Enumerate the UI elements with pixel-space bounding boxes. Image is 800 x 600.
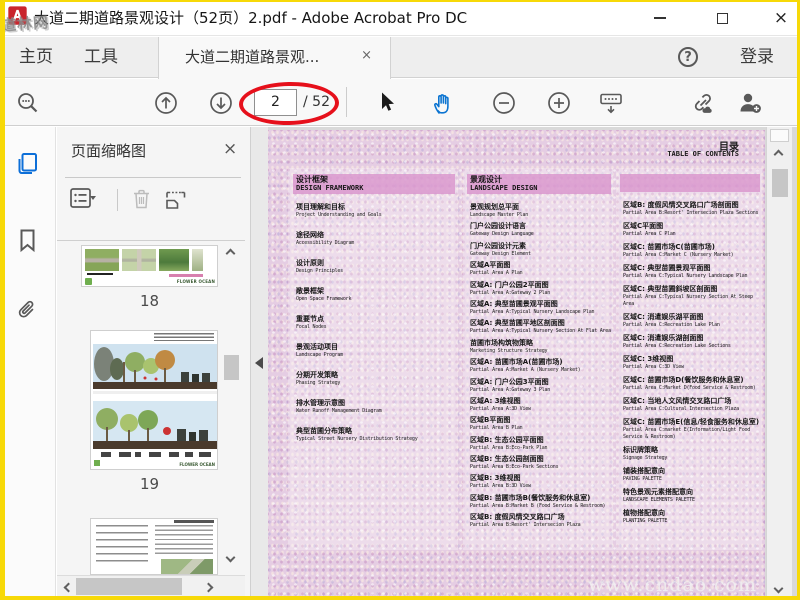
entry-cn: 设计原则 bbox=[296, 259, 455, 268]
scroll-down-icon[interactable] bbox=[226, 553, 236, 563]
entry-en: Partial Area B:Eco-Park Sections bbox=[470, 464, 611, 471]
title-bar: 大道二期道路景观设计（52页）2.pdf - Adobe Acrobat Pro… bbox=[0, 0, 800, 36]
toc-entry: 典型苗圃分布策略 Typical Street Nursery Distribu… bbox=[293, 427, 455, 443]
scrollbar-thumb[interactable] bbox=[224, 355, 239, 380]
thumb19-header-text bbox=[154, 333, 214, 342]
zoom-in-button[interactable] bbox=[546, 90, 572, 116]
toc-entry: 门户公园设计语言 Gateway Design Language bbox=[467, 222, 611, 238]
toc-entry: 植物搭配意向 PLANTING PALETTE bbox=[620, 509, 760, 525]
toc-entry: 区域B: 度假风情交叉路口广场剖面图 Partial Area B:Resort… bbox=[620, 201, 760, 217]
toc-entry: 排水管理示意图 Water Runoff Management Diagram bbox=[293, 399, 455, 415]
toc-entry: 重要节点 Focal Nodes bbox=[293, 315, 455, 331]
entry-en: Partial Area A:Gateway 3 Plan bbox=[470, 387, 611, 394]
entry-en: Partial Area A:Typical Nursery Section A… bbox=[470, 328, 611, 335]
entry-cn: 区域A: 门户公园2平面图 bbox=[470, 281, 611, 290]
entry-en: Partial Area C:3D View bbox=[623, 364, 760, 371]
previous-page-button[interactable] bbox=[153, 90, 179, 116]
toc-section-header bbox=[620, 174, 760, 192]
collapse-panel-icon[interactable] bbox=[255, 357, 263, 369]
toolbar: 2 / 52 bbox=[0, 79, 800, 126]
panel-close-icon[interactable]: × bbox=[223, 139, 237, 159]
toc-entry: 区域C: 典型苗圃斜坡区剖面图 Partial Area C:Typical N… bbox=[620, 285, 760, 308]
toc-section-header: 景观设计 LANDSCAPE DESIGN bbox=[467, 174, 611, 194]
toc-entry: 项目理解和目标 Project Understanding and Goals bbox=[293, 203, 455, 219]
entry-cn: 区域C: 当地人文风情交叉路口广场 bbox=[623, 397, 760, 406]
entry-en: PAVING PALETTE bbox=[623, 476, 760, 483]
entry-cn: 分期开发策略 bbox=[296, 371, 455, 380]
toc-entry: 区域B: 3维视图 Partial Area B:3D View bbox=[467, 474, 611, 490]
bookmarks-panel-icon[interactable] bbox=[14, 227, 41, 254]
entry-cn: 区域C: 3维视图 bbox=[623, 355, 760, 364]
thumb20-text-right bbox=[155, 525, 213, 555]
toc-entry: 区域A平面图 Partial Area A Plan bbox=[467, 261, 611, 277]
toc-entry: 区域A: 苗圃市场A(苗圃市场) Partial Area A:Market A… bbox=[467, 358, 611, 374]
thumb19-brand-text: FLOWER OCEAN bbox=[179, 462, 215, 467]
add-user-sign-icon[interactable] bbox=[737, 90, 763, 116]
entry-en: Partial Area B:3D View bbox=[470, 483, 611, 490]
capture-border-bottom bbox=[0, 596, 800, 600]
minimize-icon bbox=[654, 17, 666, 19]
entry-en: Partial Area C:Market D(Food Service & R… bbox=[623, 385, 760, 392]
thumb18-scalebar bbox=[87, 273, 113, 275]
entry-cn: 区域B: 苗圃市场B(餐饮服务和休息室) bbox=[470, 494, 611, 503]
toc-entry: 苗圃市场构筑物策略 Marketing Structure Strategy bbox=[467, 339, 611, 355]
entry-cn: 区域A: 门户公园3平面图 bbox=[470, 378, 611, 387]
page-thumbnails-panel-icon[interactable] bbox=[14, 151, 41, 178]
close-icon: × bbox=[774, 8, 788, 28]
toc-column-2: 景观设计 LANDSCAPE DESIGN 景观规划总平面 Landscape … bbox=[467, 174, 611, 533]
page-display-icon[interactable] bbox=[598, 90, 624, 116]
scroll-up-icon[interactable] bbox=[226, 249, 236, 259]
scroll-down-icon[interactable] bbox=[774, 584, 784, 594]
entry-en: Project Understanding and Goals bbox=[296, 212, 455, 219]
share-link-icon[interactable] bbox=[690, 90, 716, 116]
page-thumbnails-panel: 页面缩略图 × bbox=[57, 127, 250, 600]
thumbnail-label-18: 18 bbox=[81, 292, 218, 310]
scrollbar-thumb[interactable] bbox=[772, 169, 788, 197]
toc-entry: 设计原则 Design Principles bbox=[293, 259, 455, 275]
thumb19-section-drawing-1 bbox=[93, 344, 217, 396]
toc-entry: 区域C: 消遣娱乐湖平面图 Partial Area C:Recreation … bbox=[620, 313, 760, 329]
header-cn: 景观设计 bbox=[470, 175, 608, 184]
scrollbar-thumb[interactable] bbox=[76, 578, 182, 595]
entry-cn: 区域B平面图 bbox=[470, 416, 611, 425]
thumb20-text-left bbox=[96, 525, 148, 565]
entry-en: Partial Area C:Typical Nursery Landscape… bbox=[623, 273, 760, 280]
entry-cn: 区域C: 苗圃市场E(信息/轻食服务和休息室) bbox=[623, 418, 760, 427]
entry-en: PLANTING PALETTE bbox=[623, 518, 760, 525]
entry-en: Water Runoff Management Diagram bbox=[296, 408, 455, 415]
entry-en: Accessibility Diagram bbox=[296, 240, 455, 247]
scroll-up-icon[interactable] bbox=[774, 150, 784, 160]
entry-cn: 门户公园设计语言 bbox=[470, 222, 611, 231]
entry-en: Typical Street Nursery Distribution Stra… bbox=[296, 436, 455, 443]
thumb20-heading bbox=[174, 520, 214, 523]
maximize-icon bbox=[717, 13, 728, 24]
select-tool-icon[interactable] bbox=[374, 90, 400, 116]
toc-entry: 区域C平面图 Partial Area C Plan bbox=[620, 222, 760, 238]
entry-cn: 途径网络 bbox=[296, 231, 455, 240]
entry-cn: 区域B: 度假风情交叉路口广场 bbox=[470, 513, 611, 522]
entry-en: Partial Area A:Gateway 2 Plan bbox=[470, 290, 611, 297]
toc-entry: 铺装搭配意向 PAVING PALETTE bbox=[620, 467, 760, 483]
entry-en: Landscape Program bbox=[296, 352, 455, 359]
document-view: 目录 TABLE OF CONTENTS 设计框架 DESIGN FRAMEWO… bbox=[268, 127, 800, 600]
toc-entry: 区域C: 苗圃市场D(餐饮服务和休息室) Partial Area C:Mark… bbox=[620, 376, 760, 392]
entry-en: Landscape Master Plan bbox=[470, 212, 611, 219]
window-title: 大道二期道路景观设计（52页）2.pdf - Adobe Acrobat Pro… bbox=[34, 0, 467, 36]
acrobat-window: 大道二期道路景观设计（52页）2.pdf - Adobe Acrobat Pro… bbox=[0, 0, 800, 600]
toc-entry: 敞景框架 Open Space Framework bbox=[293, 287, 455, 303]
toc-title-en: TABLE OF CONTENTS bbox=[667, 150, 739, 158]
toc-entry: 门户公园设计元素 Gateway Design Element bbox=[467, 242, 611, 258]
attachments-panel-icon[interactable] bbox=[14, 297, 41, 324]
entry-cn: 区域A平面图 bbox=[470, 261, 611, 270]
thumbnail-page-19[interactable]: FLOWER OCEAN bbox=[90, 330, 218, 470]
delete-pages-icon[interactable] bbox=[129, 187, 157, 211]
entry-cn: 景观活动项目 bbox=[296, 343, 455, 352]
header-en: DESIGN FRAMEWORK bbox=[296, 184, 452, 192]
entry-cn: 排水管理示意图 bbox=[296, 399, 455, 408]
thumbnail-page-18[interactable]: FLOWER OCEAN bbox=[81, 245, 218, 287]
zoom-out-button[interactable] bbox=[491, 90, 517, 116]
entry-cn: 区域C: 苗圃市场D(餐饮服务和休息室) bbox=[623, 376, 760, 385]
thumb18-logo bbox=[85, 278, 92, 285]
extract-pages-icon[interactable] bbox=[163, 187, 191, 211]
thumb19-section-drawing-2 bbox=[93, 401, 217, 453]
toc-entry: 区域A: 门户公园2平面图 Partial Area A:Gateway 2 P… bbox=[467, 281, 611, 297]
panel-gutter bbox=[250, 127, 268, 600]
entry-cn: 景观规划总平面 bbox=[470, 203, 611, 212]
entry-en: Partial Area B:Resort' Intersecion Plaza bbox=[470, 522, 611, 529]
thumb18-brand-text: FLOWER OCEAN bbox=[177, 279, 215, 284]
tab-home[interactable]: 主页 bbox=[19, 37, 53, 78]
toc-entries: 景观规划总平面 Landscape Master Plan 门户公园设计语言 G… bbox=[467, 203, 611, 529]
scroll-left-icon[interactable] bbox=[64, 583, 74, 593]
close-button[interactable]: × bbox=[759, 0, 800, 36]
entry-en: Partial Area C:Market C (Nursery Market) bbox=[623, 252, 760, 259]
thumbnail-list-divider bbox=[57, 240, 245, 241]
toc-entry: 景观规划总平面 Landscape Master Plan bbox=[467, 203, 611, 219]
entry-cn: 标识牌策略 bbox=[623, 446, 760, 455]
toc-entry: 区域C: 苗圃市场E(信息/轻食服务和休息室) Partial Area C:m… bbox=[620, 418, 760, 441]
document-tab-close-icon[interactable]: × bbox=[361, 48, 372, 63]
entry-en: Partial Area A:3D View bbox=[470, 406, 611, 413]
entry-cn: 区域A: 典型苗圃景观平面图 bbox=[470, 300, 611, 309]
pdf-page: 目录 TABLE OF CONTENTS 设计框架 DESIGN FRAMEWO… bbox=[268, 130, 765, 600]
entry-en: Signage Strategy bbox=[623, 455, 760, 462]
entry-en: Partial Area A:Market A (Nursery Market) bbox=[470, 367, 611, 374]
entry-cn: 区域C: 苗圃市场C(苗圃市场) bbox=[623, 243, 760, 252]
thumb20-image bbox=[161, 559, 213, 575]
main-area: 页面缩略图 × bbox=[0, 127, 800, 600]
entry-cn: 门户公园设计元素 bbox=[470, 242, 611, 251]
thumb18-photo-image bbox=[159, 249, 189, 271]
sign-in-button[interactable]: 登录 bbox=[740, 37, 774, 78]
entry-en: Partial Area C:Cultural Intersection Pla… bbox=[623, 406, 760, 413]
entry-en: Partial Area B:Market B (Food Service & … bbox=[470, 503, 611, 510]
toc-entry: 区域B: 生态公园平面图 Partial Area B:Eco-Park Pla… bbox=[467, 436, 611, 452]
toc-column-1: 设计框架 DESIGN FRAMEWORK 项目理解和目标 Project Un… bbox=[293, 174, 455, 455]
thumbnails-vertical-scrollbar[interactable] bbox=[220, 242, 244, 572]
help-icon[interactable]: ? bbox=[678, 47, 698, 67]
scroll-right-icon[interactable] bbox=[204, 583, 214, 593]
toc-entry: 区域A: 典型苗圃平地区剖面图 Partial Area A:Typical N… bbox=[467, 319, 611, 335]
entry-cn: 区域B: 度假风情交叉路口广场剖面图 bbox=[623, 201, 760, 210]
toc-entry: 区域A: 门户公园3平面图 Partial Area A:Gateway 3 P… bbox=[467, 378, 611, 394]
toolbar-divider bbox=[346, 87, 347, 117]
entry-en: Partial Area C:Typical Nursery Section A… bbox=[623, 294, 760, 308]
thumb18-strip-image bbox=[192, 249, 203, 271]
toc-entry: 区域C: 典型苗圃景观平面图 Partial Area C:Typical Nu… bbox=[620, 264, 760, 280]
entry-en: Focal Nodes bbox=[296, 324, 455, 331]
tab-bar: 主页 工具 大道二期道路景观... × ? 登录 bbox=[0, 37, 800, 78]
entry-en: Open Space Framework bbox=[296, 296, 455, 303]
thumbnail-options-icon[interactable] bbox=[69, 187, 97, 211]
scrollbar-top-box bbox=[770, 129, 789, 142]
site-watermark: www.cndao.com bbox=[588, 574, 757, 596]
red-ellipse-annotation bbox=[239, 81, 340, 126]
entry-en: Marketing Structure Strategy bbox=[470, 348, 611, 355]
thumbnail-label-19: 19 bbox=[81, 475, 218, 493]
corner-logo-watermark: 道林网 bbox=[0, 11, 49, 35]
entry-en: Phasing Strategy bbox=[296, 380, 455, 387]
header-cn: 设计框架 bbox=[296, 175, 452, 184]
entry-cn: 区域B: 生态公园剖面图 bbox=[470, 455, 611, 464]
entry-cn: 敞景框架 bbox=[296, 287, 455, 296]
entry-en: Partial Area B Plan bbox=[470, 425, 611, 432]
entry-cn: 区域C: 典型苗圃景观平面图 bbox=[623, 264, 760, 273]
thumb18-aerial-image bbox=[122, 249, 156, 271]
entry-en: Partial Area C:Recreation Lake Sections bbox=[623, 343, 760, 350]
toc-entry: 区域B: 苗圃市场B(餐饮服务和休息室) Partial Area B:Mark… bbox=[467, 494, 611, 510]
entry-en: Partial Area A Plan bbox=[470, 270, 611, 277]
navigation-pane-strip bbox=[0, 127, 56, 600]
hand-tool-icon[interactable] bbox=[430, 90, 456, 116]
thumb18-plan-image bbox=[85, 249, 119, 271]
entry-en: Partial Area A:Typical Nursery Landscape… bbox=[470, 309, 611, 316]
toc-section-header: 设计框架 DESIGN FRAMEWORK bbox=[293, 174, 455, 194]
entry-cn: 区域B: 生态公园平面图 bbox=[470, 436, 611, 445]
entry-en: Gateway Design Language bbox=[470, 231, 611, 238]
entry-cn: 特色景观元素搭配意向 bbox=[623, 488, 760, 497]
tab-tools[interactable]: 工具 bbox=[84, 37, 118, 78]
minimize-button[interactable] bbox=[638, 0, 682, 36]
capture-border-top bbox=[0, 0, 800, 2]
next-page-button[interactable] bbox=[208, 90, 234, 116]
document-tab[interactable]: 大道二期道路景观... × bbox=[158, 37, 391, 79]
header-en: LANDSCAPE DESIGN bbox=[470, 184, 608, 192]
entry-cn: 苗圃市场构筑物策略 bbox=[470, 339, 611, 348]
thumb19-logo bbox=[94, 460, 100, 466]
entry-cn: 区域C: 消遣娱乐湖剖面图 bbox=[623, 334, 760, 343]
entry-cn: 区域A: 3维视图 bbox=[470, 397, 611, 406]
document-tab-label: 大道二期道路景观... bbox=[185, 37, 319, 78]
maximize-button[interactable] bbox=[700, 0, 744, 36]
entry-en: Partial Area C:Recreation Lake Plan bbox=[623, 322, 760, 329]
thumbnails-horizontal-scrollbar[interactable] bbox=[57, 575, 245, 597]
thumb18-titleband bbox=[169, 274, 203, 277]
entry-en: Partial Area B:Eco-Park Plan bbox=[470, 445, 611, 452]
entry-en: Design Principles bbox=[296, 268, 455, 275]
capture-border-left bbox=[0, 0, 5, 600]
toc-entry: 区域A: 3维视图 Partial Area A:3D View bbox=[467, 397, 611, 413]
thumbnail-page-20[interactable] bbox=[90, 518, 218, 575]
entry-cn: 项目理解和目标 bbox=[296, 203, 455, 212]
toc-entry: 区域A: 典型苗圃景观平面图 Partial Area A:Typical Nu… bbox=[467, 300, 611, 316]
entry-cn: 区域C: 典型苗圃斜坡区剖面图 bbox=[623, 285, 760, 294]
toc-entry: 途径网络 Accessibility Diagram bbox=[293, 231, 455, 247]
entry-en: Partial Area C Plan bbox=[623, 231, 760, 238]
toc-column-3: 区域B: 度假风情交叉路口广场剖面图 Partial Area B:Resort… bbox=[620, 174, 760, 530]
toc-entry: 区域C: 3维视图 Partial Area C:3D View bbox=[620, 355, 760, 371]
toc-entry: 区域C: 当地人文风情交叉路口广场 Partial Area C:Cultura… bbox=[620, 397, 760, 413]
panel-divider bbox=[65, 177, 241, 178]
panel-toolbar-divider bbox=[117, 189, 118, 211]
entry-cn: 重要节点 bbox=[296, 315, 455, 324]
entry-cn: 典型苗圃分布策略 bbox=[296, 427, 455, 436]
entry-cn: 铺装搭配意向 bbox=[623, 467, 760, 476]
toc-entry: 区域B平面图 Partial Area B Plan bbox=[467, 416, 611, 432]
entry-cn: 区域C平面图 bbox=[623, 222, 760, 231]
toc-entry: 区域C: 苗圃市场C(苗圃市场) Partial Area C:Market C… bbox=[620, 243, 760, 259]
entry-en: LANDSCAPE ELEMENTS PALETTE bbox=[623, 497, 760, 504]
entry-cn: 区域B: 3维视图 bbox=[470, 474, 611, 483]
entry-en: Partial Area C:market E(Information/Ligh… bbox=[623, 427, 760, 441]
toc-entry: 分期开发策略 Phasing Strategy bbox=[293, 371, 455, 387]
document-vertical-scrollbar[interactable] bbox=[766, 127, 792, 600]
toc-entry: 景观活动项目 Landscape Program bbox=[293, 343, 455, 359]
toc-entries: 项目理解和目标 Project Understanding and Goals … bbox=[293, 203, 455, 443]
entry-en: Gateway Design Element bbox=[470, 251, 611, 258]
entry-cn: 植物搭配意向 bbox=[623, 509, 760, 518]
entry-cn: 区域A: 典型苗圃平地区剖面图 bbox=[470, 319, 611, 328]
entry-cn: 区域C: 消遣娱乐湖平面图 bbox=[623, 313, 760, 322]
panel-title: 页面缩略图 bbox=[71, 140, 146, 161]
toc-entry: 区域B: 生态公园剖面图 Partial Area B:Eco-Park Sec… bbox=[467, 455, 611, 471]
toc-entry: 区域B: 度假风情交叉路口广场 Partial Area B:Resort' I… bbox=[467, 513, 611, 529]
toc-entry: 特色景观元素搭配意向 LANDSCAPE ELEMENTS PALETTE bbox=[620, 488, 760, 504]
entry-cn: 区域A: 苗圃市场A(苗圃市场) bbox=[470, 358, 611, 367]
entry-en: Partial Area B:Resort' Intersecion Plaza… bbox=[623, 210, 760, 217]
toc-entries: 区域B: 度假风情交叉路口广场剖面图 Partial Area B:Resort… bbox=[620, 201, 760, 525]
toc-entry: 区域C: 消遣娱乐湖剖面图 Partial Area C:Recreation … bbox=[620, 334, 760, 350]
toc-entry: 标识牌策略 Signage Strategy bbox=[620, 446, 760, 462]
search-zoom-icon[interactable] bbox=[15, 90, 41, 116]
